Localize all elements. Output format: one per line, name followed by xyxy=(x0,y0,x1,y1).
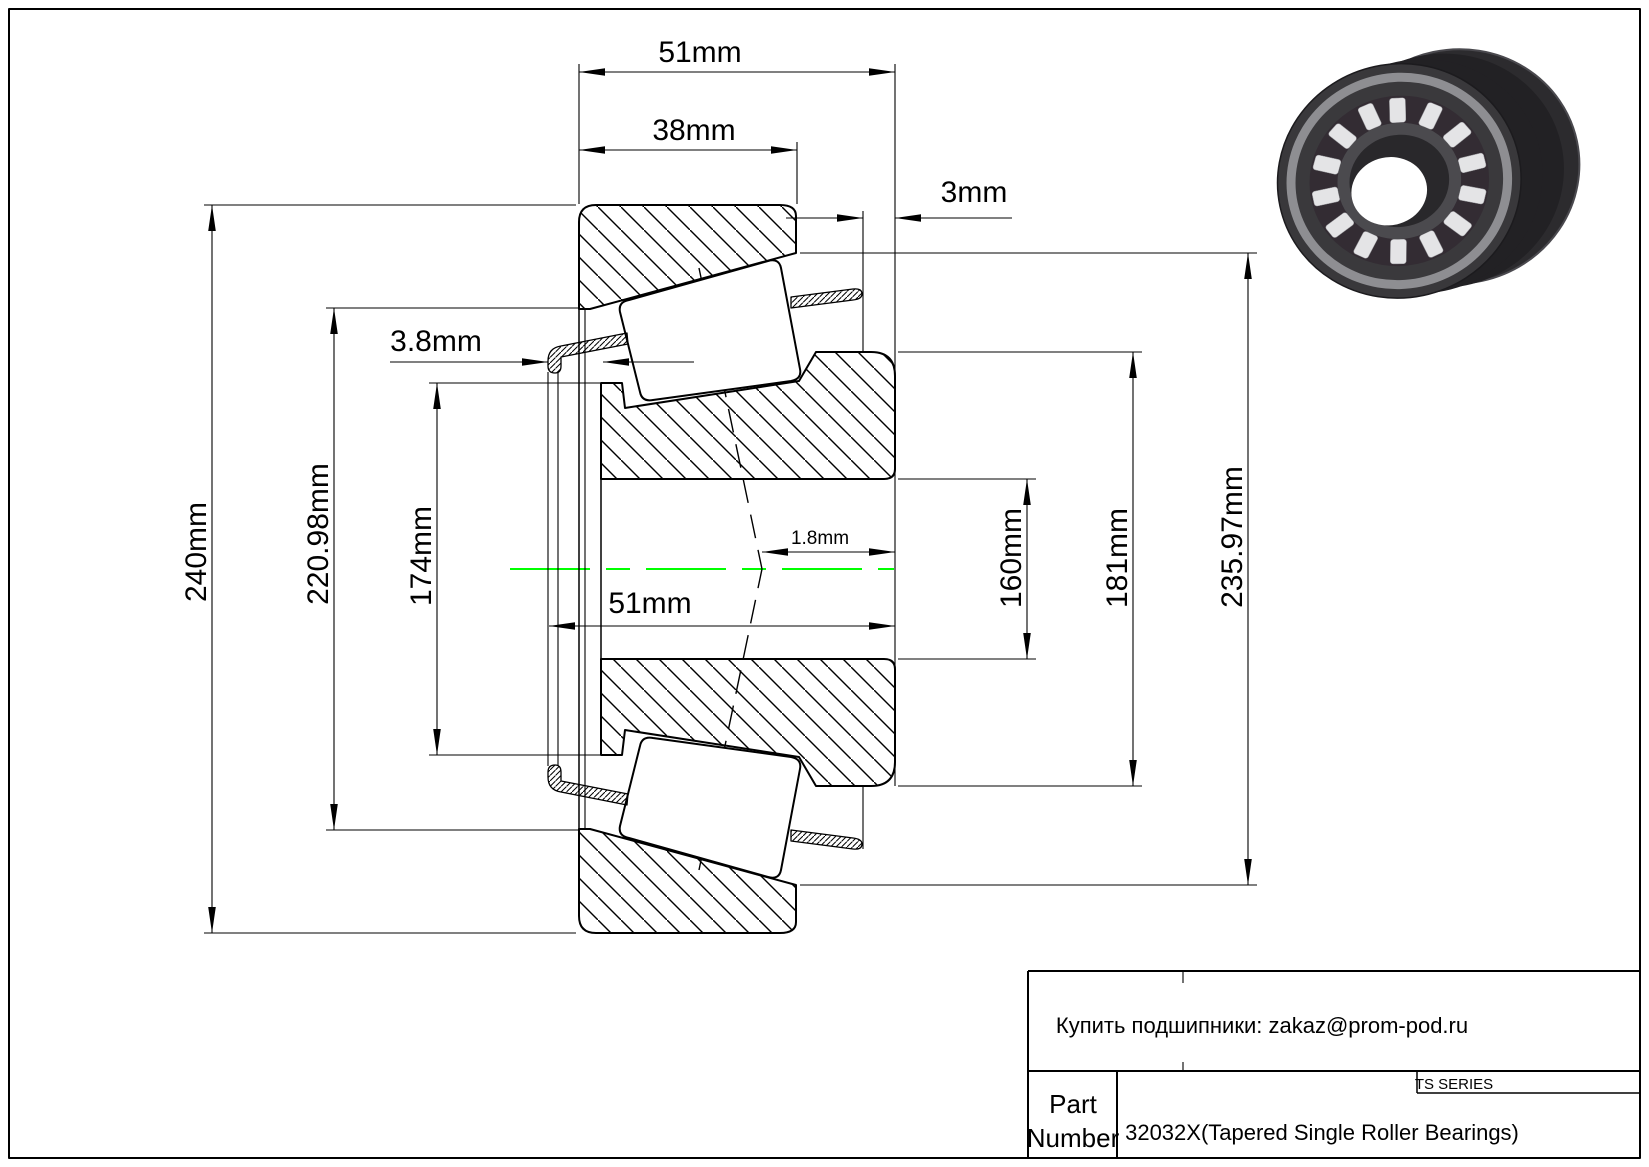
dim-label-back-rib-diameter: 181mm xyxy=(1101,508,1134,608)
part-number-label-line2: Number xyxy=(1027,1123,1120,1153)
drawing-page: 51mm 38mm 3mm 3.8mm 51mm 1.8mm 240mm 220… xyxy=(0,0,1649,1167)
part-number-label-line1: Part xyxy=(1049,1089,1097,1119)
dim-label-effective-center: 1.8mm xyxy=(791,528,849,549)
dim-label-front-overhang: 3.8mm xyxy=(390,325,482,358)
dim-label-outside-diameter: 240mm xyxy=(180,502,213,602)
roller-glyph xyxy=(1389,98,1406,123)
dim-label-cup-raceway-diameter: 220.98mm xyxy=(302,463,335,605)
roller-glyph xyxy=(1390,239,1406,264)
technical-drawing-canvas: 51mm 38mm 3mm 3.8mm 51mm 1.8mm 240mm 220… xyxy=(0,0,1649,1167)
dim-label-bore-diameter: 160mm xyxy=(995,508,1028,608)
part-number-value: 32032X(Tapered Single Roller Bearings) xyxy=(1125,1120,1519,1145)
dim-label-back-overhang: 3mm xyxy=(941,176,1008,209)
dim-label-cone-width: 51mm xyxy=(608,587,691,620)
contact-text: Купить подшипники: zakaz@prom-pod.ru xyxy=(1056,1013,1468,1038)
dim-label-cup-back-diameter: 235.97mm xyxy=(1216,466,1249,608)
series-label: TS SERIES xyxy=(1415,1076,1493,1093)
dim-label-front-rib-diameter: 174mm xyxy=(405,506,438,606)
dim-label-cup-width: 38mm xyxy=(652,114,735,147)
dim-label-overall-width: 51mm xyxy=(658,36,741,69)
